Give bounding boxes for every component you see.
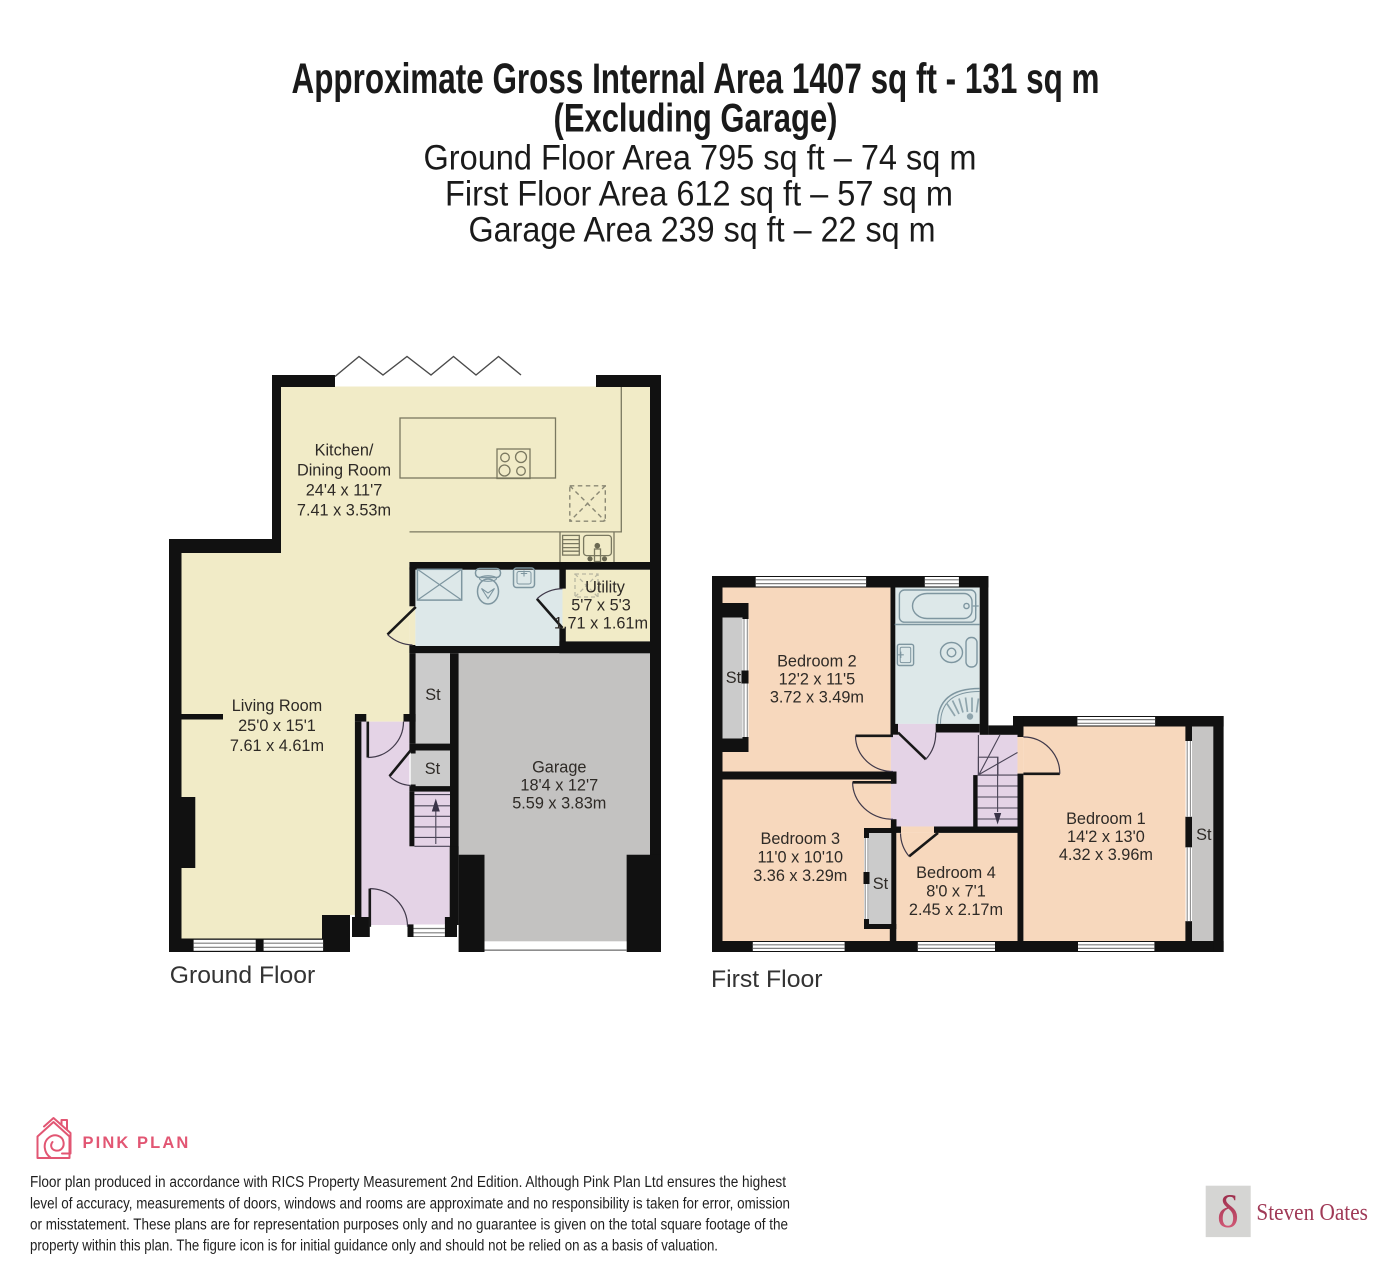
svg-text:1.71 x 1.61m: 1.71 x 1.61m — [554, 615, 648, 633]
svg-text:Garage: Garage — [532, 759, 586, 777]
svg-text:First Floor: First Floor — [711, 966, 823, 993]
svg-text:7.61 x 4.61m: 7.61 x 4.61m — [230, 737, 324, 755]
svg-text:St: St — [425, 686, 441, 704]
svg-text:(Excluding Garage): (Excluding Garage) — [554, 97, 838, 141]
svg-text:11'0 x 10'10: 11'0 x 10'10 — [758, 849, 844, 867]
svg-text:5.59 x 3.83m: 5.59 x 3.83m — [512, 795, 606, 813]
svg-text:Floor plan produced in accorda: Floor plan produced in accordance with R… — [30, 1174, 787, 1191]
svg-text:Steven Oates: Steven Oates — [1256, 1200, 1368, 1226]
svg-text:Bedroom 3: Bedroom 3 — [760, 830, 840, 848]
svg-text:St: St — [726, 669, 742, 687]
svg-text:8'0 x 7'1: 8'0 x 7'1 — [926, 883, 986, 901]
svg-text:St: St — [425, 760, 441, 778]
svg-text:property within this plan. The: property within this plan. The figure ic… — [30, 1238, 718, 1255]
svg-text:14'2 x 13'0: 14'2 x 13'0 — [1067, 828, 1145, 846]
svg-text:12'2 x 11'5: 12'2 x 11'5 — [779, 671, 856, 689]
svg-text:2.45 x 2.17m: 2.45 x 2.17m — [909, 901, 1003, 919]
svg-text:Ground Floor Area 795 sq ft –: Ground Floor Area 795 sq ft – 74 sq m — [424, 139, 977, 178]
svg-text:5'7 x 5'3: 5'7 x 5'3 — [571, 597, 631, 615]
svg-text:18'4 x 12'7: 18'4 x 12'7 — [520, 777, 598, 795]
svg-text:Garage Area 239 sq ft – 22 sq: Garage Area 239 sq ft – 22 sq m — [469, 211, 936, 250]
svg-text:First Floor Area 612 sq ft – 5: First Floor Area 612 sq ft – 57 sq m — [445, 175, 953, 214]
svg-text:or misstatement. These plans a: or misstatement. These plans are for rep… — [30, 1217, 788, 1234]
svg-text:Utility: Utility — [585, 579, 626, 597]
svg-text:4.32 x 3.96m: 4.32 x 3.96m — [1059, 846, 1153, 864]
svg-text:δ: δ — [1217, 1186, 1239, 1237]
svg-text:25'0 x 15'1: 25'0 x 15'1 — [238, 717, 316, 735]
svg-text:Living Room: Living Room — [232, 697, 323, 715]
svg-text:7.41 x 3.53m: 7.41 x 3.53m — [297, 502, 391, 520]
svg-text:Dining Room: Dining Room — [297, 462, 391, 480]
svg-text:Kitchen/: Kitchen/ — [315, 442, 374, 460]
svg-text:Bedroom 4: Bedroom 4 — [916, 864, 996, 882]
svg-text:St: St — [1196, 826, 1212, 844]
svg-text:3.72 x 3.49m: 3.72 x 3.49m — [770, 689, 864, 707]
svg-text:Bedroom 1: Bedroom 1 — [1066, 810, 1146, 828]
svg-text:St: St — [873, 875, 889, 893]
svg-text:PINK PLAN: PINK PLAN — [83, 1134, 193, 1152]
svg-text:24'4 x 11'7: 24'4 x 11'7 — [306, 482, 383, 500]
svg-text:level of accuracy, measurement: level of accuracy, measurements of doors… — [30, 1196, 790, 1213]
svg-text:3.36 x 3.29m: 3.36 x 3.29m — [753, 867, 847, 885]
svg-text:Bedroom 2: Bedroom 2 — [777, 652, 857, 670]
svg-text:Ground Floor: Ground Floor — [170, 962, 315, 989]
